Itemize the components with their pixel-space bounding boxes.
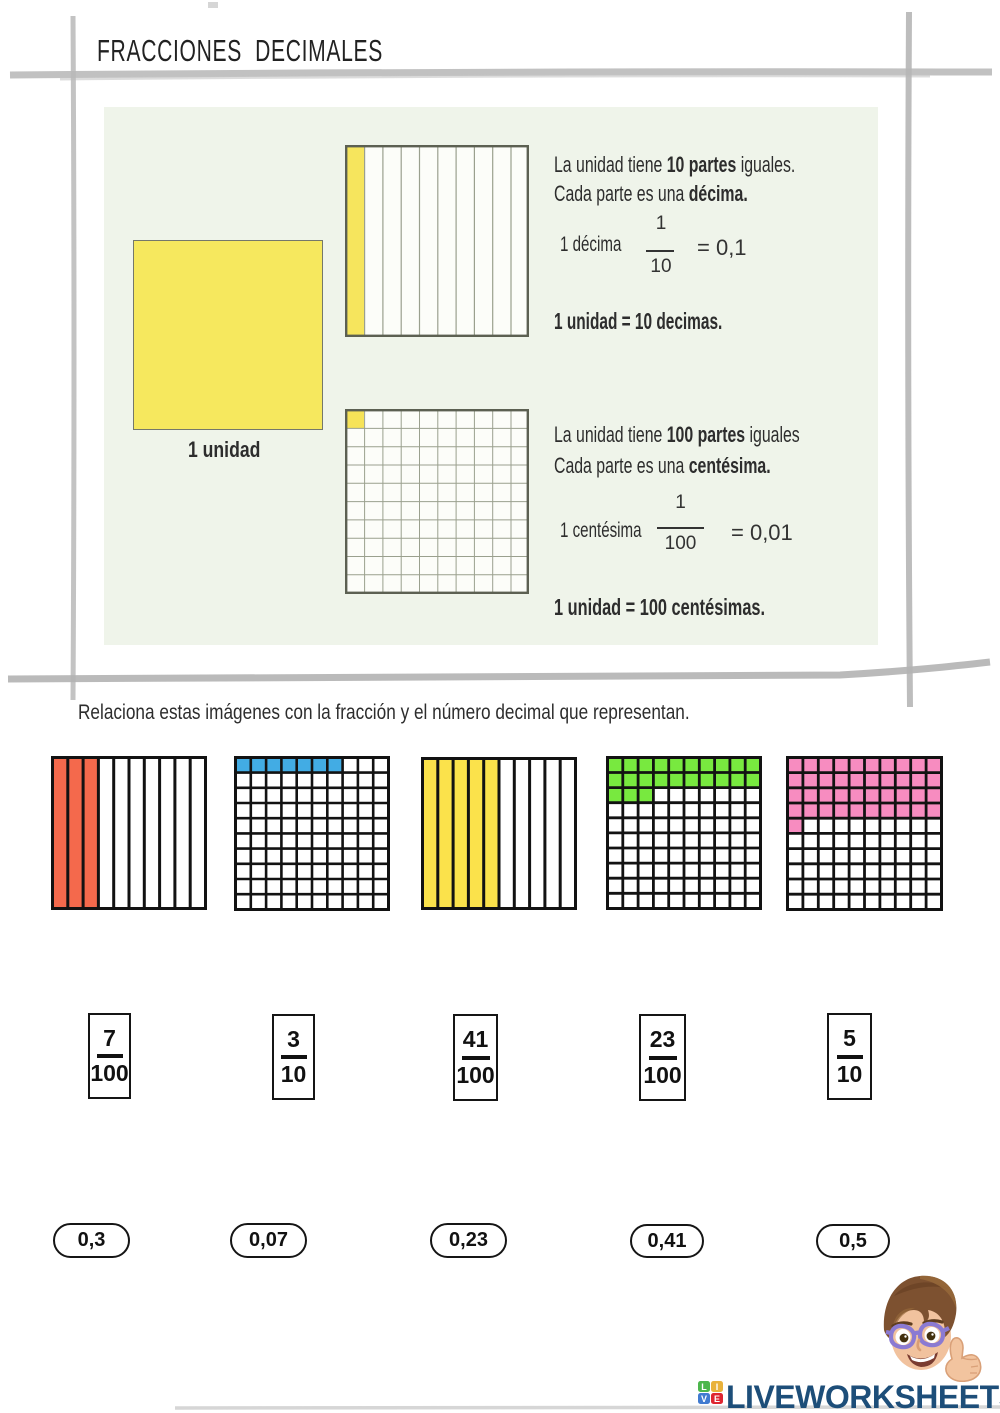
svg-text:V: V [701, 1394, 707, 1404]
svg-text:I: I [716, 1382, 719, 1392]
svg-text:E: E [714, 1394, 720, 1404]
svg-text:L: L [701, 1382, 707, 1392]
